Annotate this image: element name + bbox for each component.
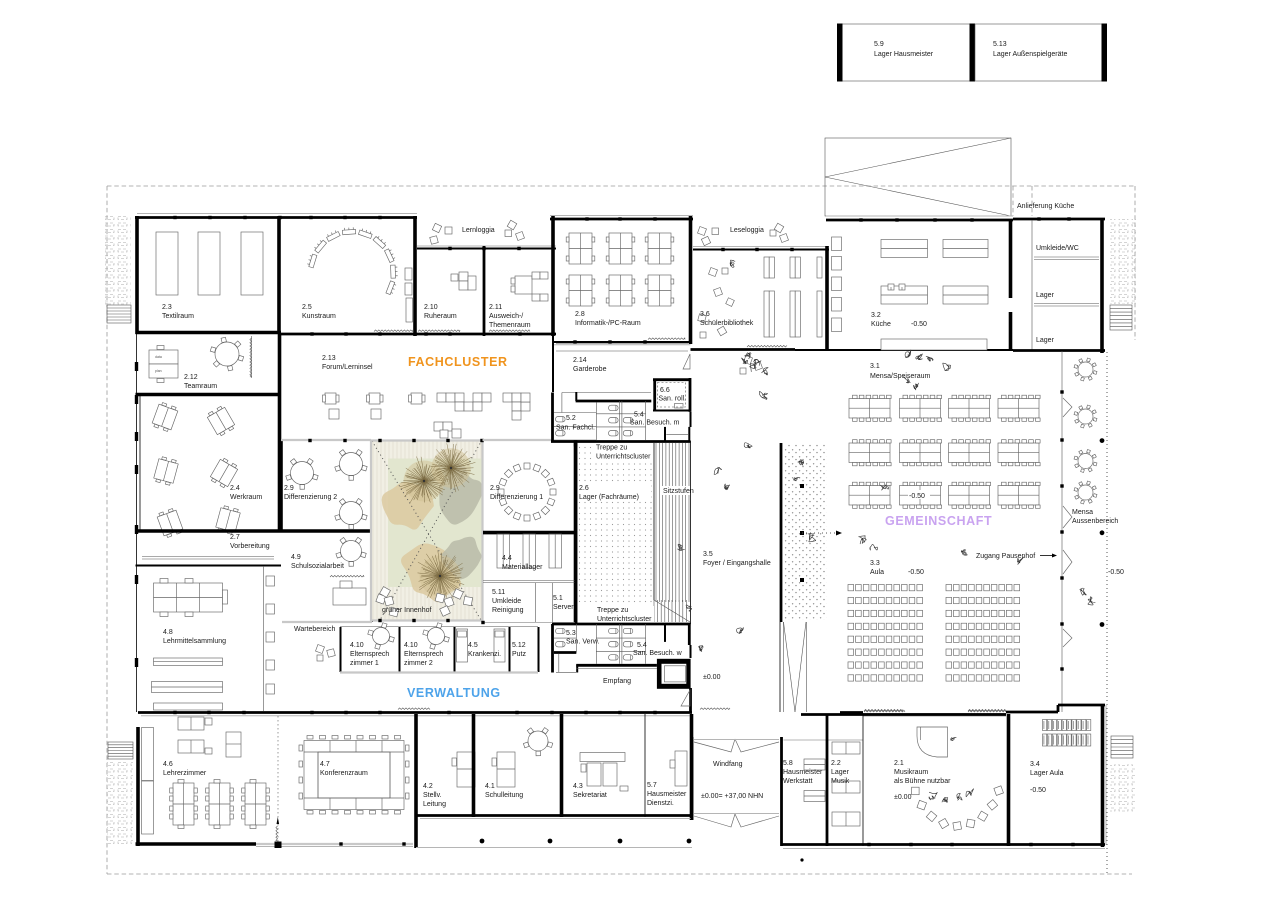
svg-text:Umkleide/WC: Umkleide/WC (1036, 245, 1079, 252)
svg-text:data: data (155, 355, 162, 359)
svg-text:4.4: 4.4 (502, 555, 512, 562)
svg-text:Teamraum: Teamraum (184, 383, 217, 390)
svg-text:Unterrichtscluster: Unterrichtscluster (596, 454, 651, 461)
svg-text:±0.00: ±0.00 (703, 674, 721, 681)
svg-text:Garderobe: Garderobe (573, 366, 607, 373)
svg-text:Foyer / Eingangshalle: Foyer / Eingangshalle (703, 560, 771, 567)
svg-text:2.8: 2.8 (575, 311, 585, 318)
svg-text:Lehrerzimmer: Lehrerzimmer (163, 770, 207, 777)
svg-text:Windfang: Windfang (713, 761, 743, 768)
svg-text:Werkraum: Werkraum (230, 494, 262, 501)
svg-text:5.8: 5.8 (783, 760, 793, 767)
svg-text:Empfang: Empfang (603, 678, 631, 685)
svg-text:Vorbereitung: Vorbereitung (230, 543, 270, 550)
svg-text:zimmer 2: zimmer 2 (404, 660, 433, 667)
svg-text:Leitung: Leitung (423, 801, 446, 808)
svg-text:4.2: 4.2 (423, 783, 433, 790)
svg-text:5.7: 5.7 (647, 782, 657, 789)
svg-text:Lernloggia: Lernloggia (462, 227, 495, 234)
svg-text:2.9: 2.9 (284, 485, 294, 492)
svg-text:-0.50: -0.50 (909, 493, 925, 500)
svg-text:3.5: 3.5 (703, 551, 713, 558)
svg-text:grüner Innenhof: grüner Innenhof (382, 607, 431, 614)
svg-text:Konferenzraum: Konferenzraum (320, 770, 368, 777)
svg-text:Schulleitung: Schulleitung (485, 792, 523, 799)
svg-text:3.3: 3.3 (870, 560, 880, 567)
svg-text:VERWALTUNG: VERWALTUNG (407, 686, 501, 700)
svg-text:Textilraum: Textilraum (162, 313, 194, 320)
svg-text:3.2: 3.2 (871, 312, 881, 319)
svg-text:Aula: Aula (870, 569, 884, 576)
svg-text:Umkleide: Umkleide (492, 598, 521, 605)
svg-text:Aussenbereich: Aussenbereich (1072, 518, 1118, 525)
svg-text:2.10: 2.10 (424, 304, 438, 311)
svg-text:3.6: 3.6 (700, 311, 710, 318)
svg-text:Lager Aula: Lager Aula (1030, 770, 1064, 777)
svg-text:Mensa: Mensa (1072, 509, 1093, 516)
svg-text:Elternsprech: Elternsprech (404, 651, 443, 658)
svg-text:Lager (Fachräume): Lager (Fachräume) (579, 494, 639, 501)
svg-text:4.10: 4.10 (350, 642, 364, 649)
svg-text:Anlieferung Küche: Anlieferung Küche (1017, 203, 1074, 210)
svg-text:Ausweich-/: Ausweich-/ (489, 313, 523, 320)
svg-text:5.3: 5.3 (566, 630, 576, 637)
svg-text:3.1: 3.1 (870, 363, 880, 370)
svg-text:6.6: 6.6 (660, 387, 670, 394)
svg-text:Zugang Pausenhof: Zugang Pausenhof (976, 553, 1035, 560)
svg-text:Schülerbibliothek: Schülerbibliothek (700, 320, 754, 327)
svg-text:2.4: 2.4 (230, 485, 240, 492)
svg-text:Forum/Lerninsel: Forum/Lerninsel (322, 364, 373, 371)
svg-text:5.4: 5.4 (637, 642, 647, 649)
svg-text:Putz: Putz (512, 651, 527, 658)
svg-text:Informatik-/PC-Raum: Informatik-/PC-Raum (575, 320, 641, 327)
svg-text:Leseloggia: Leseloggia (730, 227, 764, 234)
svg-text:5.11: 5.11 (492, 589, 505, 596)
svg-text:Unterrichtscluster: Unterrichtscluster (597, 616, 652, 623)
svg-text:4.3: 4.3 (573, 783, 583, 790)
svg-text:FACHCLUSTER: FACHCLUSTER (408, 355, 508, 369)
svg-text:San. Fachcl.: San. Fachcl. (556, 425, 595, 432)
svg-text:2.11: 2.11 (489, 304, 502, 311)
svg-text:2.5: 2.5 (302, 304, 312, 311)
svg-text:4.6: 4.6 (163, 761, 173, 768)
svg-text:Materiallager: Materiallager (502, 564, 543, 571)
svg-text:Differenzierung 1: Differenzierung 1 (490, 494, 543, 501)
svg-text:4.7: 4.7 (320, 761, 330, 768)
svg-text:5.13: 5.13 (993, 41, 1007, 48)
svg-text:4.5: 4.5 (468, 642, 478, 649)
svg-text:2.7: 2.7 (230, 534, 240, 541)
svg-text:3.4: 3.4 (1030, 761, 1040, 768)
svg-text:4.10: 4.10 (404, 642, 418, 649)
svg-text:Küche: Küche (871, 321, 891, 328)
svg-text:Elternsprech: Elternsprech (350, 651, 389, 658)
svg-text:4.9: 4.9 (291, 554, 301, 561)
svg-text:-0.50: -0.50 (1030, 787, 1046, 794)
svg-text:5.12: 5.12 (512, 642, 526, 649)
svg-text:2.9: 2.9 (490, 485, 500, 492)
svg-text:2.3: 2.3 (162, 304, 172, 311)
svg-text:San. Verw.: San. Verw. (566, 639, 600, 646)
svg-text:Stellv.: Stellv. (423, 792, 442, 799)
svg-text:Lehrmittelsammlung: Lehrmittelsammlung (163, 638, 226, 645)
svg-text:±0.00= +37,00 NHN: ±0.00= +37,00 NHN (701, 793, 763, 800)
svg-text:Dienstzi.: Dienstzi. (647, 800, 674, 807)
svg-text:Treppe zu: Treppe zu (596, 445, 627, 452)
svg-text:5.1: 5.1 (553, 595, 563, 602)
svg-text:als Bühne nutzbar: als Bühne nutzbar (894, 778, 951, 785)
svg-text:GEMEINSCHAFT: GEMEINSCHAFT (885, 514, 992, 528)
svg-text:±0.00: ±0.00 (894, 794, 912, 801)
svg-text:2.2: 2.2 (831, 760, 841, 767)
svg-text:2.14: 2.14 (573, 357, 587, 364)
svg-text:5.2: 5.2 (566, 415, 576, 422)
svg-text:Themenraum: Themenraum (489, 322, 531, 329)
svg-text:Ruheraum: Ruheraum (424, 313, 457, 320)
svg-text:5.4: 5.4 (634, 412, 644, 419)
svg-text:San. roll.: San. roll. (659, 396, 687, 403)
svg-text:5.9: 5.9 (874, 41, 884, 48)
svg-text:Wartebereich: Wartebereich (294, 626, 335, 633)
svg-text:4.8: 4.8 (163, 629, 173, 636)
svg-text:Treppe zu: Treppe zu (597, 607, 628, 614)
svg-text:Lager: Lager (831, 769, 850, 776)
svg-text:Differenzierung 2: Differenzierung 2 (284, 494, 337, 501)
svg-text:Sekretariat: Sekretariat (573, 792, 607, 799)
svg-text:Mensa/Speiseraum: Mensa/Speiseraum (870, 373, 930, 380)
svg-text:Krankenzi.: Krankenzi. (468, 651, 501, 658)
svg-text:plan: plan (155, 369, 162, 373)
svg-text:San. Besuch. m: San. Besuch. m (630, 420, 680, 427)
svg-text:Lager Hausmeister: Lager Hausmeister (874, 51, 934, 58)
svg-text:-0.50: -0.50 (911, 321, 927, 328)
svg-text:Sitzstufen: Sitzstufen (663, 488, 694, 495)
svg-text:Lager: Lager (1036, 292, 1055, 299)
svg-text:2.1: 2.1 (894, 760, 904, 767)
svg-text:Server: Server (553, 604, 574, 611)
svg-text:Werkstatt: Werkstatt (783, 778, 812, 785)
svg-text:Reinigung: Reinigung (492, 607, 524, 614)
svg-text:-0.50: -0.50 (908, 569, 924, 576)
svg-text:San. Besuch. w: San. Besuch. w (633, 650, 683, 657)
svg-text:2.13: 2.13 (322, 355, 336, 362)
svg-text:Musikraum: Musikraum (894, 769, 928, 776)
svg-text:4.1: 4.1 (485, 783, 495, 790)
svg-text:zimmer 1: zimmer 1 (350, 660, 379, 667)
svg-text:Schulsozialarbeit: Schulsozialarbeit (291, 563, 344, 570)
svg-text:2.12: 2.12 (184, 374, 198, 381)
svg-text:-0.50: -0.50 (1108, 569, 1124, 576)
svg-text:Hausmeister: Hausmeister (647, 791, 687, 798)
svg-text:Hausmeister: Hausmeister (783, 769, 823, 776)
svg-text:Musik: Musik (831, 778, 850, 785)
svg-text:Lager Außenspielgeräte: Lager Außenspielgeräte (993, 51, 1067, 58)
svg-text:Kunstraum: Kunstraum (302, 313, 336, 320)
svg-text:Lager: Lager (1036, 337, 1055, 344)
svg-text:2.6: 2.6 (579, 485, 589, 492)
